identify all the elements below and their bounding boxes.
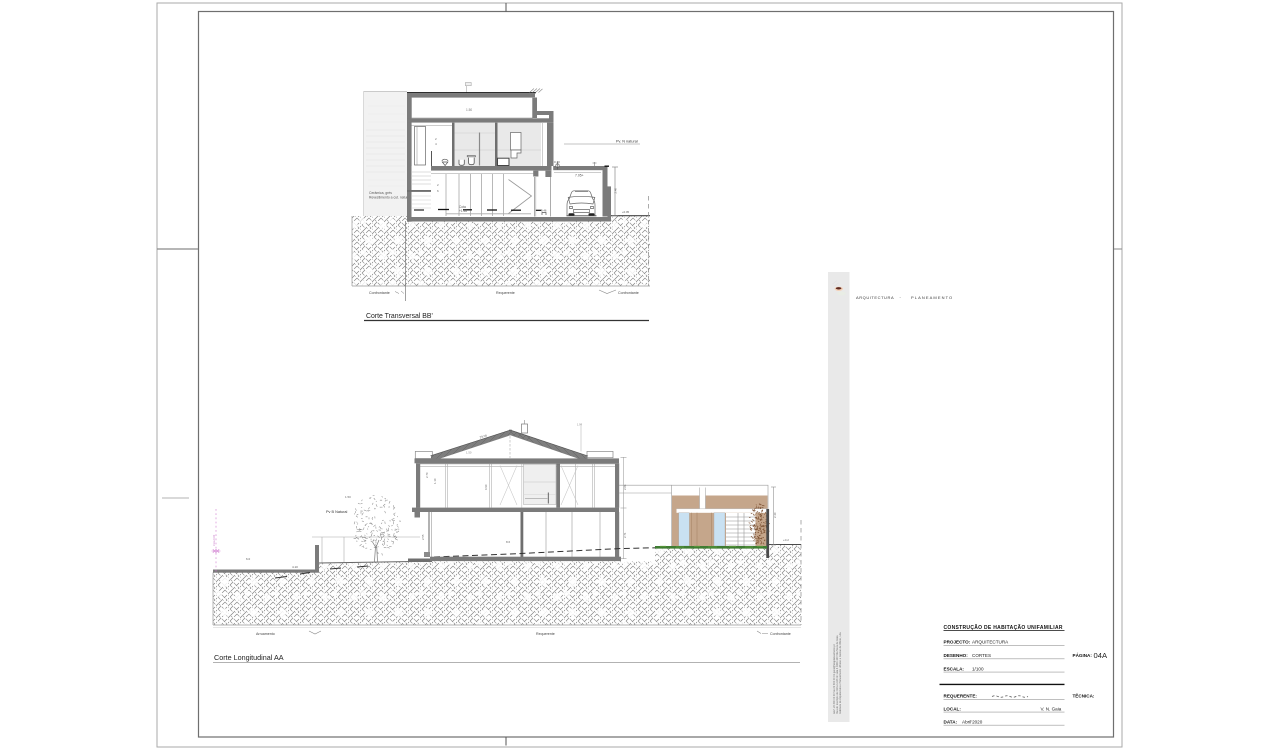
svg-text:2.40: 2.40 (773, 512, 777, 518)
svg-text:0.46: 0.46 (541, 209, 547, 213)
svg-text:1.10: 1.10 (433, 478, 437, 484)
svg-text:0.90: 0.90 (484, 484, 488, 490)
svg-text:Requerente: Requerente (496, 291, 515, 295)
svg-text:Confrontante: Confrontante (770, 632, 791, 636)
svg-text:Rua do Exemplo de Cima n.123 r: Rua do Exemplo de Cima n.123 r/c sala 4 … (836, 635, 839, 714)
svg-text:1.50: 1.50 (345, 495, 351, 499)
svg-text:Gabinete de Arquitectura e Pla: Gabinete de Arquitectura e Planeamento U… (839, 632, 842, 714)
svg-text:2.70: 2.70 (425, 472, 429, 478)
svg-text:8.6: 8.6 (506, 540, 511, 544)
svg-text:ARQUITECTURA: ARQUITECTURA (972, 640, 1009, 645)
svg-text:telef. 22 300 00 00 fax 22 30: telef. 22 300 00 00 fax 22 300 00 01 ger… (833, 644, 836, 714)
svg-text:+0.2: +0.2 (783, 538, 789, 542)
svg-text:CONSTRUÇÃO DE HABITAÇÃO UNI: CONSTRUÇÃO DE HABITAÇÃO UNIFAMILIAR (944, 624, 1063, 631)
svg-text:04A: 04A (1094, 651, 1108, 660)
svg-text:REQUERENTE:: REQUERENTE: (944, 694, 978, 699)
svg-text:Corte Longitudinal AA: Corte Longitudinal AA (214, 653, 284, 662)
svg-text:2.40: 2.40 (614, 188, 618, 194)
svg-text:ARQUITECTURA: ARQUITECTURA (856, 295, 894, 300)
svg-text:Corte Transversal BB': Corte Transversal BB' (366, 313, 433, 320)
svg-text:-: - (900, 294, 902, 299)
svg-text:V. N. Gaia: V. N. Gaia (1041, 706, 1062, 711)
svg-text:Cota 0.00: Cota 0.00 (212, 534, 216, 546)
svg-text:1.98: 1.98 (577, 423, 583, 427)
svg-text:Confrontante: Confrontante (369, 291, 390, 295)
svg-text:+0.05: +0.05 (622, 210, 630, 214)
svg-text:1.50: 1.50 (466, 108, 472, 112)
svg-text:ESCALA:: ESCALA: (944, 666, 965, 671)
svg-text:4.10: 4.10 (292, 565, 298, 569)
svg-text:LOCAL:: LOCAL: (944, 706, 962, 711)
svg-text:1.50: 1.50 (466, 451, 472, 455)
svg-text:CORTES: CORTES (972, 653, 991, 658)
svg-text:Pv. N natural: Pv. N natural (616, 140, 638, 144)
svg-text:2.86: 2.86 (623, 484, 627, 490)
svg-text:Cerâmica, grés: Cerâmica, grés (369, 191, 392, 195)
svg-text:7.05+: 7.05+ (575, 174, 584, 178)
svg-text:DATA:: DATA: (944, 719, 958, 724)
svg-text:Requerente: Requerente (536, 632, 555, 636)
svg-text:+1.46: +1.46 (459, 209, 467, 213)
svg-text:2.71: 2.71 (623, 532, 627, 538)
svg-text:2.55: 2.55 (421, 534, 425, 540)
svg-text:DESENHO:: DESENHO: (944, 653, 969, 658)
svg-text:TÉCNICA:: TÉCNICA: (1073, 692, 1095, 699)
svg-text:Arruamento: Arruamento (256, 632, 275, 636)
svg-text:Revestimento a cut. natural: Revestimento a cut. natural (369, 196, 411, 200)
svg-text:PROJECTO:: PROJECTO: (944, 640, 971, 645)
svg-text:PÁGINA:: PÁGINA: (1073, 652, 1093, 658)
svg-text:0.10: 0.10 (554, 160, 560, 164)
svg-text:PLANEAMENTO: PLANEAMENTO (911, 295, 953, 300)
svg-text:Confrontante: Confrontante (618, 291, 639, 295)
svg-text:Abril'2020: Abril'2020 (962, 719, 983, 724)
svg-text:6.0: 6.0 (246, 557, 251, 561)
svg-text:Pv B Natural: Pv B Natural (326, 510, 347, 514)
svg-text:1/100: 1/100 (972, 666, 984, 671)
